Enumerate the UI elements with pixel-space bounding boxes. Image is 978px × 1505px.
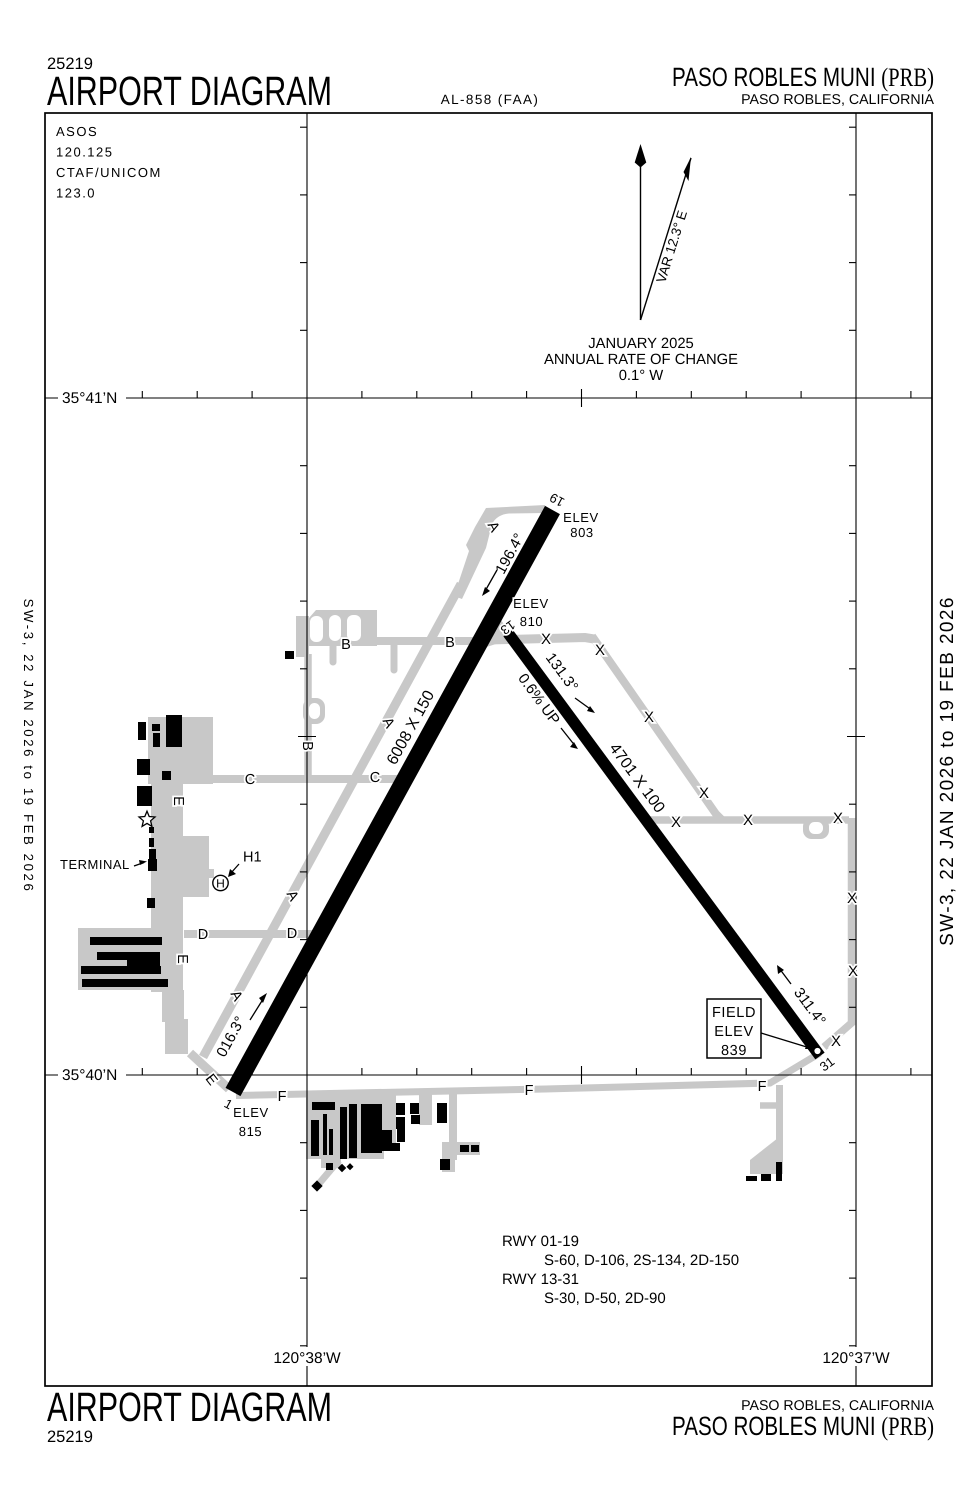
svg-text:SW-3, 22 JAN 2026 to 19 FEB: SW-3, 22 JAN 2026 to 19 FEB 2026 [937, 596, 958, 946]
svg-text:810: 810 [520, 614, 544, 629]
svg-text:F: F [278, 1089, 287, 1105]
svg-text:PASO ROBLES MUNI (PRB): PASO ROBLES MUNI (PRB) [672, 1411, 934, 1441]
svg-text:B: B [299, 741, 315, 751]
svg-text:S-30, D-50, 2D-90: S-30, D-50, 2D-90 [544, 1290, 666, 1307]
svg-text:815: 815 [239, 1124, 263, 1139]
svg-text:ELEV: ELEV [513, 596, 549, 611]
svg-text:RWY 13-31: RWY 13-31 [502, 1271, 579, 1288]
svg-text:RWY 01-19: RWY 01-19 [502, 1233, 579, 1250]
svg-text:AIRPORT DIAGRAM: AIRPORT DIAGRAM [47, 68, 332, 114]
svg-text:X: X [833, 810, 843, 827]
svg-text:D: D [198, 927, 208, 943]
svg-text:0.1° W: 0.1° W [619, 368, 664, 384]
svg-text:SW-3, 22 JAN 2026 to 19 FEB: SW-3, 22 JAN 2026 to 19 FEB 2026 [21, 599, 36, 894]
svg-text:X: X [671, 814, 681, 831]
svg-text:120.125: 120.125 [56, 145, 114, 160]
svg-text:ASOS: ASOS [56, 124, 98, 139]
svg-text:35°40’N: 35°40’N [62, 1067, 117, 1084]
svg-text:B: B [341, 637, 351, 653]
svg-text:CTAF/UNICOM: CTAF/UNICOM [56, 165, 162, 180]
svg-text:35°41’N: 35°41’N [62, 390, 117, 407]
svg-text:X: X [595, 642, 605, 659]
svg-text:X: X [831, 1033, 841, 1050]
svg-text:E: E [174, 954, 190, 964]
svg-text:ELEV: ELEV [563, 510, 599, 525]
svg-text:PASO ROBLES, CALIFORNIA: PASO ROBLES, CALIFORNIA [741, 92, 934, 108]
svg-text:ELEV: ELEV [233, 1105, 269, 1120]
svg-text:D: D [287, 926, 297, 942]
svg-text:X: X [644, 709, 654, 726]
svg-text:PASO ROBLES MUNI (PRB): PASO ROBLES MUNI (PRB) [672, 62, 934, 92]
svg-text:123.0: 123.0 [56, 186, 96, 201]
svg-text:120°37’W: 120°37’W [822, 1350, 890, 1367]
svg-text:F: F [525, 1083, 534, 1099]
svg-text:JANUARY 2025: JANUARY 2025 [588, 336, 694, 352]
svg-text:S-60, D-106, 2S-134, 2D-150: S-60, D-106, 2S-134, 2D-150 [544, 1252, 739, 1269]
svg-text:AL-858 (FAA): AL-858 (FAA) [441, 92, 540, 107]
svg-text:X: X [743, 812, 753, 829]
svg-text:803: 803 [570, 525, 594, 540]
svg-text:120°38’W: 120°38’W [273, 1350, 341, 1367]
svg-text:839: 839 [721, 1043, 747, 1059]
svg-text:C: C [370, 770, 380, 786]
svg-text:F: F [758, 1079, 767, 1095]
svg-text:X: X [699, 785, 709, 802]
svg-text:X: X [847, 890, 857, 907]
svg-text:H1: H1 [243, 850, 262, 866]
svg-text:E: E [170, 796, 186, 806]
svg-text:FIELD: FIELD [712, 1005, 756, 1021]
svg-text:ANNUAL RATE OF CHANGE: ANNUAL RATE OF CHANGE [544, 352, 738, 368]
svg-text:B: B [445, 635, 455, 651]
svg-text:X: X [541, 631, 551, 648]
svg-text:C: C [245, 772, 255, 788]
svg-text:25219: 25219 [47, 1428, 93, 1446]
svg-text:X: X [848, 963, 858, 980]
svg-text:TERMINAL: TERMINAL [60, 857, 130, 872]
svg-text:ELEV: ELEV [714, 1024, 753, 1040]
svg-text:AIRPORT DIAGRAM: AIRPORT DIAGRAM [47, 1384, 332, 1430]
svg-text:H: H [216, 877, 225, 891]
